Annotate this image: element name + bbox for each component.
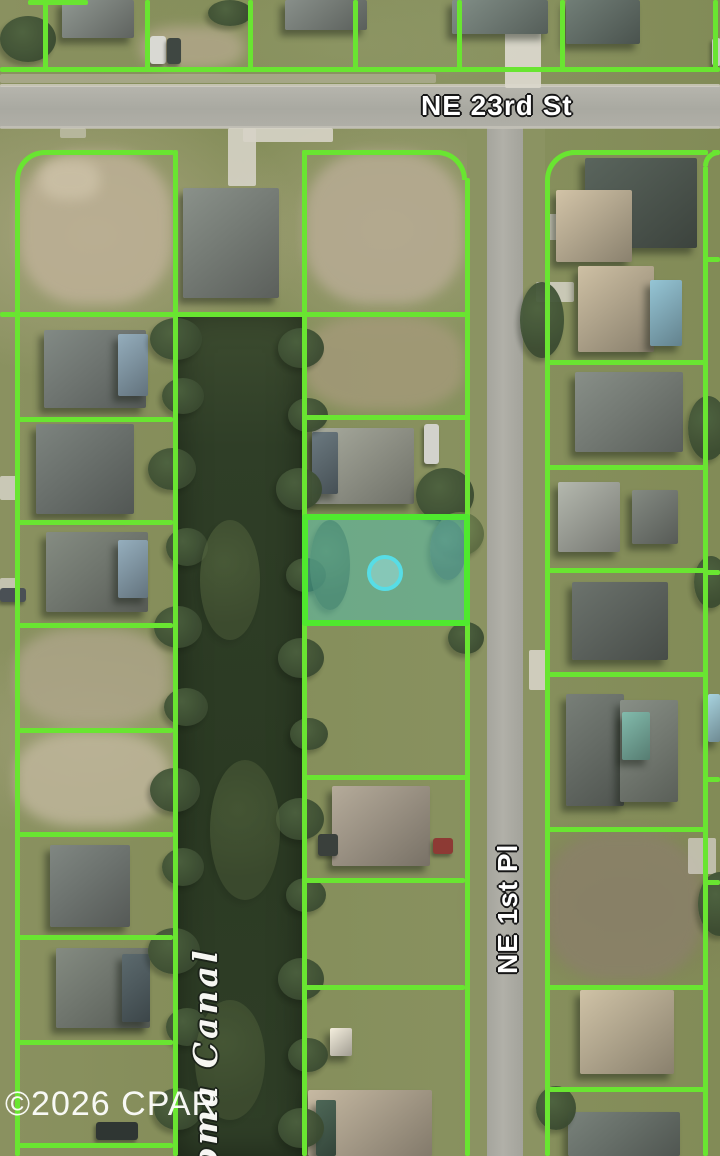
tree (210, 760, 280, 900)
parcel-line (15, 623, 173, 628)
tree (278, 958, 324, 1000)
house-roof (580, 990, 674, 1074)
parcel-line (465, 178, 470, 1156)
parcel-line (545, 672, 705, 677)
house-roof (62, 0, 134, 38)
parcel-line (15, 520, 173, 525)
car (150, 36, 166, 64)
road-ne-23rd-st (0, 86, 720, 128)
parcel-line (560, 0, 565, 72)
parcel-line (42, 150, 174, 155)
concrete-patch (505, 26, 541, 88)
parcel-line (545, 827, 705, 832)
tree (536, 1086, 576, 1130)
parcel-line (28, 0, 88, 5)
tree (278, 1108, 324, 1148)
house-roof (330, 1028, 352, 1056)
parcel-line (302, 150, 442, 155)
concrete-patch (228, 128, 256, 186)
tree (164, 688, 208, 726)
parcel-line (545, 568, 705, 573)
parcel-line (570, 150, 708, 155)
ground-patch (40, 160, 100, 200)
car (433, 838, 453, 854)
parcel-line (15, 935, 173, 940)
parcel-line (43, 0, 48, 72)
concrete-patch (0, 84, 720, 87)
parcel-line (705, 257, 720, 262)
parcel-line (248, 0, 253, 72)
parcel-line (353, 0, 358, 72)
car (96, 1122, 138, 1140)
parcel-line (705, 777, 720, 782)
concrete-patch (0, 126, 720, 129)
tree (200, 520, 260, 640)
parcel-line (302, 415, 470, 420)
parcel-corner (545, 150, 575, 180)
parcel-line (705, 880, 720, 885)
house-roof (708, 694, 720, 742)
highlighted-parcel (302, 514, 470, 626)
house-roof (50, 845, 130, 927)
car (0, 588, 26, 602)
tree (276, 798, 324, 840)
parcel-corner (437, 150, 467, 180)
aerial-map-image: NE 23rd St NE 1st Pl oma Canal ©2026 CPA… (0, 0, 720, 1156)
parcel-line (545, 465, 705, 470)
parcel-line (545, 1087, 705, 1092)
house-roof (650, 280, 682, 346)
parcel-line (15, 832, 173, 837)
tree (276, 468, 322, 510)
parcel-line (15, 728, 173, 733)
parcel-line (173, 150, 178, 1156)
house-roof (332, 786, 430, 866)
house-roof (572, 582, 668, 660)
tree (162, 848, 204, 886)
house-roof (575, 372, 683, 452)
parcel-line (15, 417, 173, 422)
car (424, 424, 439, 464)
subject-property-marker (367, 555, 403, 591)
tree (290, 718, 328, 750)
parcel-line (0, 312, 467, 317)
street-label-ne-23rd-st: NE 23rd St (421, 90, 573, 122)
parcel-line (0, 67, 720, 72)
house-roof (566, 694, 624, 806)
parcel-line (713, 0, 718, 72)
car (318, 834, 338, 856)
house-roof (556, 190, 632, 262)
tree (278, 328, 324, 368)
parcel-line (302, 985, 465, 990)
ground-patch (16, 628, 170, 724)
tree (148, 448, 196, 490)
house-roof (622, 712, 650, 760)
house-roof (122, 954, 150, 1022)
tree (520, 282, 564, 358)
concrete-patch (60, 128, 86, 138)
parcel-line (15, 178, 20, 1156)
parcel-line (15, 1143, 173, 1148)
parcel-line (145, 0, 150, 72)
concrete-patch (0, 74, 436, 83)
concrete-patch (243, 128, 333, 142)
parcel-line (545, 178, 550, 1156)
ground-patch (304, 316, 464, 410)
house-roof (578, 266, 654, 352)
parcel-line (545, 360, 705, 365)
parcel-line (457, 0, 462, 72)
house-roof (558, 482, 620, 552)
concrete-patch (688, 838, 716, 874)
house-roof (36, 424, 134, 514)
parcel-line (705, 570, 720, 575)
parcel-line (703, 166, 708, 1156)
street-label-ne-1st-pl: NE 1st Pl (480, 800, 536, 1018)
ground-patch (546, 832, 702, 980)
parcel-line (545, 985, 705, 990)
canal-label: oma Canal (186, 955, 250, 1156)
house-roof (118, 334, 148, 396)
parcel-line (302, 878, 465, 883)
parcel-line (302, 150, 307, 1156)
tree (208, 0, 252, 26)
house-roof (568, 1112, 680, 1156)
tree (278, 638, 324, 678)
parcel-corner (15, 150, 45, 180)
ground-patch (16, 732, 170, 826)
house-roof (566, 0, 640, 44)
tree (162, 378, 204, 414)
house-roof (632, 490, 678, 544)
house-roof (183, 188, 279, 298)
house-roof (452, 0, 548, 34)
tree (288, 1038, 328, 1072)
parcel-line (302, 775, 470, 780)
copyright-watermark: ©2026 CPAR (5, 1085, 217, 1124)
parcel-line (15, 1040, 173, 1045)
car (167, 38, 181, 64)
house-roof (118, 540, 148, 598)
